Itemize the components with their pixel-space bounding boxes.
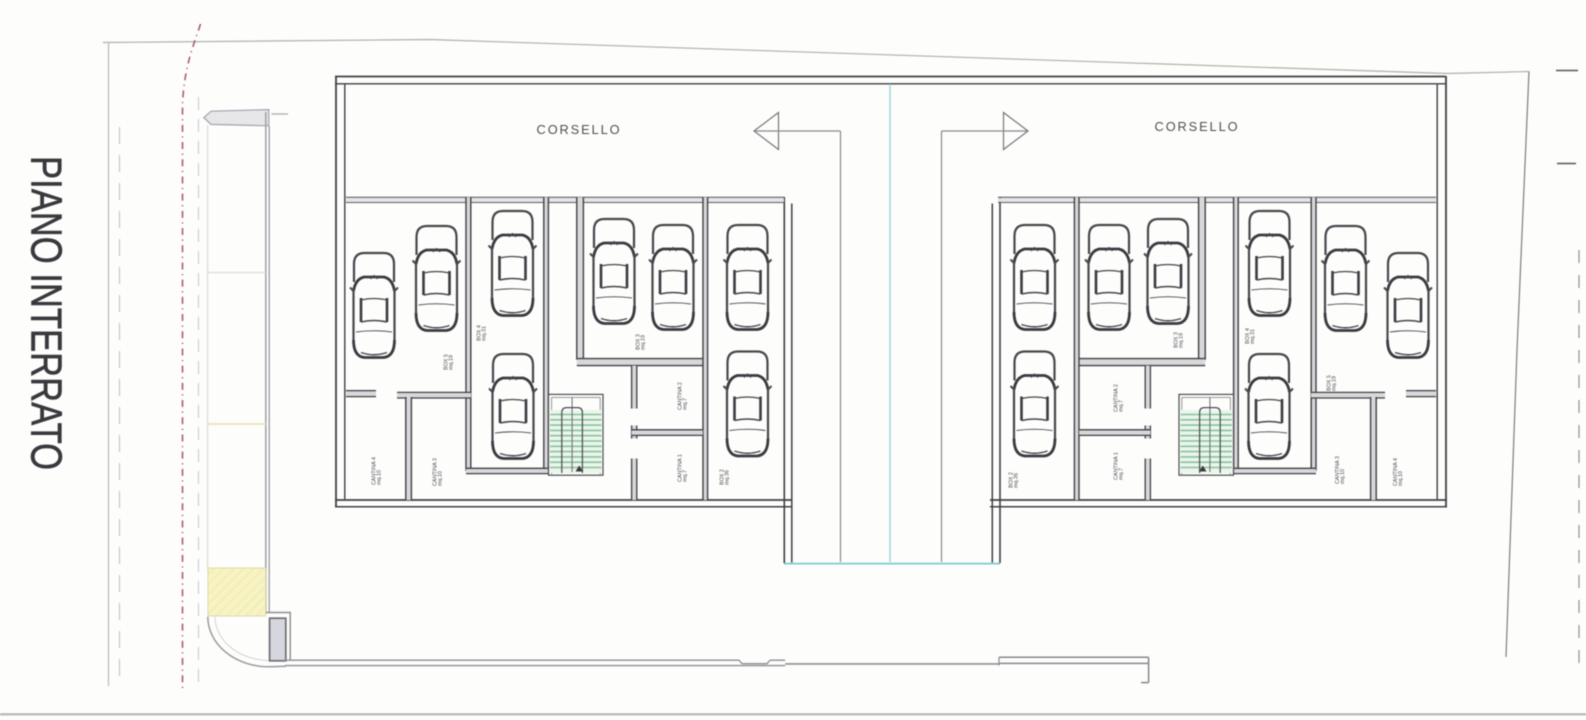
svg-text:CORSELLO: CORSELLO — [1155, 119, 1240, 134]
svg-text:CORSELLO: CORSELLO — [537, 122, 622, 137]
svg-text:mq.36: mq.36 — [1014, 473, 1020, 488]
svg-text:mq.7: mq.7 — [683, 398, 689, 410]
svg-text:mq.19: mq.19 — [1332, 376, 1338, 391]
svg-text:mq.19: mq.19 — [641, 335, 647, 350]
svg-text:mq.10: mq.10 — [1340, 469, 1346, 484]
svg-text:mq.7: mq.7 — [683, 470, 689, 482]
svg-text:mq.10: mq.10 — [1398, 471, 1404, 486]
svg-text:mq.10: mq.10 — [377, 470, 383, 485]
svg-text:mq.19: mq.19 — [1179, 333, 1185, 348]
svg-text:mq.31: mq.31 — [482, 326, 488, 341]
svg-text:mq.10: mq.10 — [438, 471, 444, 486]
svg-text:mq.19: mq.19 — [449, 355, 455, 370]
svg-text:mq.7: mq.7 — [1119, 400, 1125, 412]
svg-text:mq.7: mq.7 — [1119, 468, 1125, 480]
svg-text:mq.36: mq.36 — [725, 470, 731, 485]
svg-text:mq.31: mq.31 — [1250, 329, 1256, 344]
svg-text:PIANO INTERRATO: PIANO INTERRATO — [22, 156, 71, 470]
